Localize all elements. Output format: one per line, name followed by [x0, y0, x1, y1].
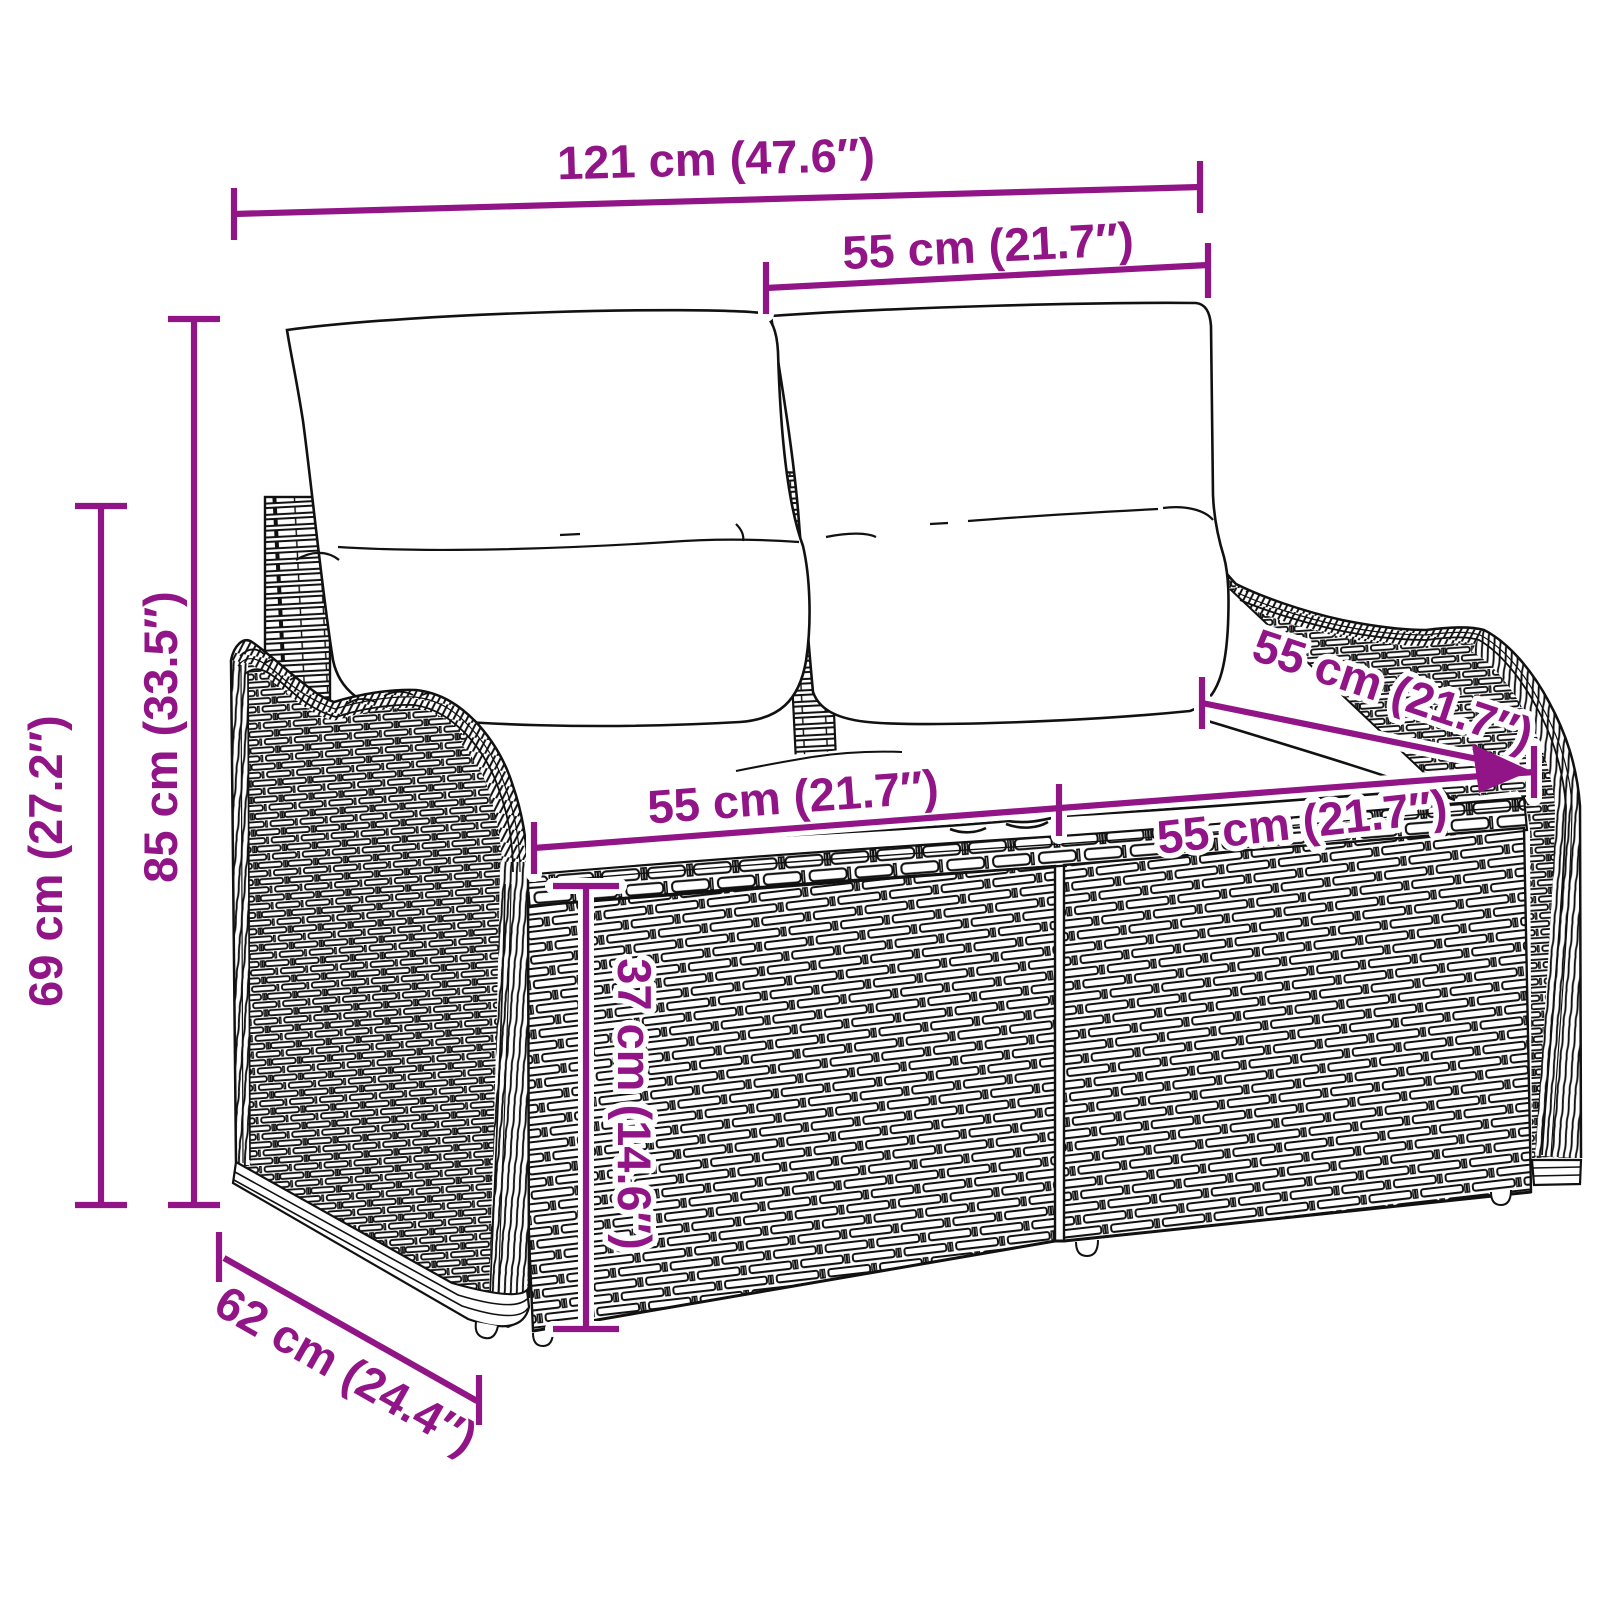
svg-text:37 cm (14.6″): 37 cm (14.6″): [608, 958, 661, 1250]
svg-text:69 cm (27.2″): 69 cm (27.2″): [19, 715, 72, 1007]
svg-text:85 cm (33.5″): 85 cm (33.5″): [134, 591, 187, 883]
svg-text:121 cm (47.6″): 121 cm (47.6″): [556, 128, 875, 190]
